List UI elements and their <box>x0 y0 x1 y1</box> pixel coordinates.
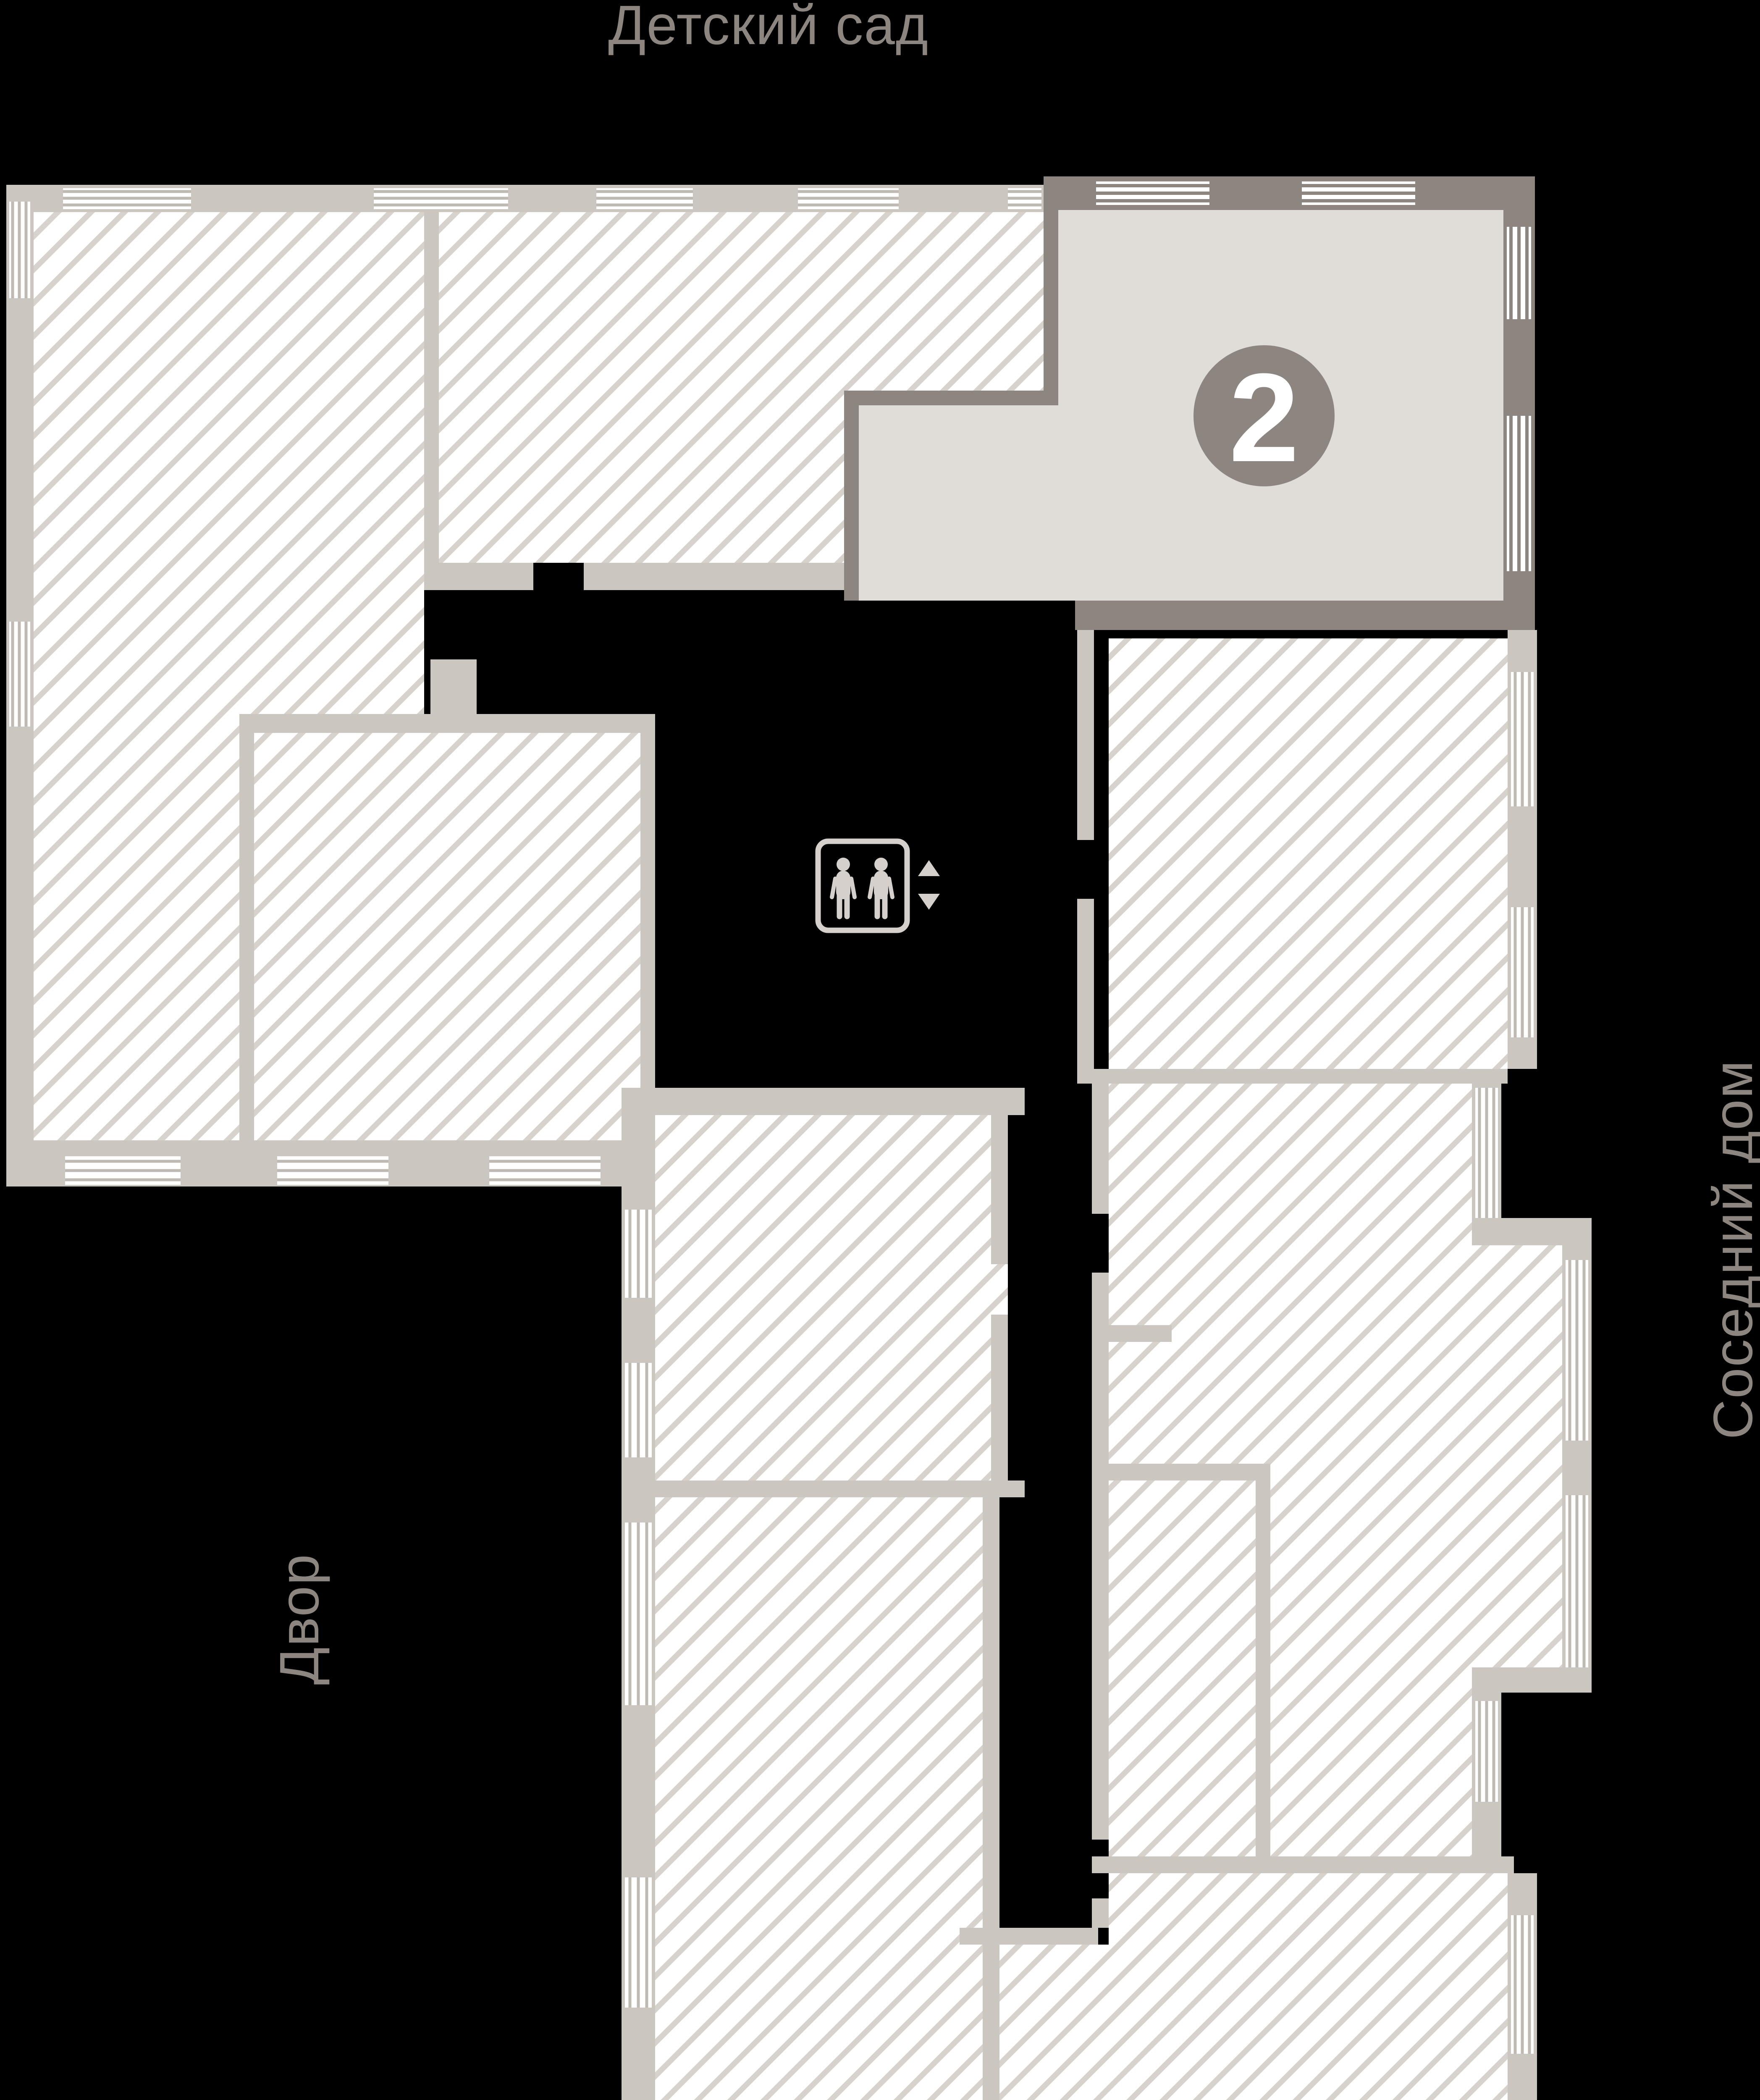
room-hatched <box>1109 638 1508 1069</box>
room-hatched <box>1109 1480 1256 1856</box>
room-hatched <box>655 1115 1008 1480</box>
label-neighbor-house: Соседний дом <box>1702 1060 1760 1440</box>
floor-plan-svg: 2 Детский сад Соседний дом Двор <box>0 0 1760 2100</box>
label-courtyard: Двор <box>268 1554 330 1685</box>
room-hatched <box>655 1497 983 2100</box>
room-hatched <box>254 733 640 1140</box>
label-kindergarten: Детский сад <box>608 0 929 56</box>
floor-plan-page: 2 Детский сад Соседний дом Двор <box>0 0 1760 2100</box>
apartment-number: 2 <box>1229 347 1299 488</box>
